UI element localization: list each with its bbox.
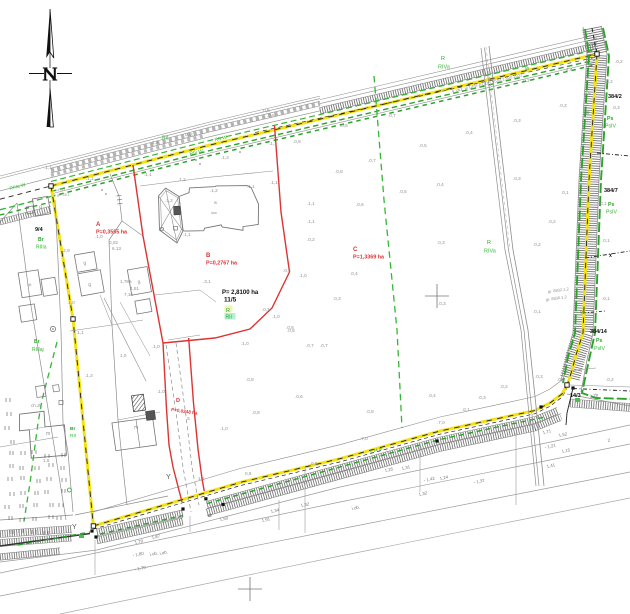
svg-text:Y: Y xyxy=(72,524,77,531)
svg-text:.1,2: .1,2 xyxy=(165,198,173,203)
svg-text:Br: Br xyxy=(70,426,75,432)
svg-text:Br: Br xyxy=(38,237,44,243)
svg-text:low: low xyxy=(211,211,217,215)
svg-text:.0,5: .0,5 xyxy=(262,108,270,113)
svg-text:11/5: 11/5 xyxy=(224,297,237,304)
svg-text:R: R xyxy=(226,308,230,314)
svg-text:.0,3: .0,3 xyxy=(438,301,446,306)
svg-text:.0,2: .0,2 xyxy=(548,219,556,224)
svg-text:RIIIaj: RIIIaj xyxy=(32,347,44,353)
svg-text:.1,0: .1,0 xyxy=(272,314,280,319)
svg-text:.0,1: .0,1 xyxy=(602,296,610,301)
svg-text:.0,4: .0,4 xyxy=(436,182,444,187)
svg-text:0,9: 0,9 xyxy=(311,461,318,466)
svg-text:384/14: 384/14 xyxy=(590,329,608,335)
svg-text:.1,1: .1,1 xyxy=(270,180,278,185)
svg-text:RIVa: RIVa xyxy=(438,65,451,71)
svg-text:.1,1: .1,1 xyxy=(44,165,52,170)
svg-text:.5: .5 xyxy=(186,416,190,421)
svg-text:Ps: Ps xyxy=(596,338,602,344)
svg-text:RIVa: RIVa xyxy=(484,249,497,255)
svg-text:A: A xyxy=(96,222,101,228)
svg-text:.1,1: .1,1 xyxy=(76,330,84,335)
svg-text:.0,7: .0,7 xyxy=(368,158,376,163)
svg-text:4,51: 4,51 xyxy=(130,286,139,291)
svg-text:.0,4: .0,4 xyxy=(465,130,473,135)
svg-text:.2,5: .2,5 xyxy=(583,91,591,96)
svg-text:.0,3: .0,3 xyxy=(559,103,567,108)
svg-text:.0,8: .0,8 xyxy=(335,169,343,174)
svg-text:.0,5: .0,5 xyxy=(399,189,407,194)
svg-text:.1,2: .1,2 xyxy=(178,177,186,182)
svg-text:9/4: 9/4 xyxy=(35,227,44,233)
svg-text:.0,1: .0,1 xyxy=(599,201,607,206)
svg-text:RII: RII xyxy=(226,315,232,321)
svg-text:.0,2: .0,2 xyxy=(307,237,315,242)
svg-text:.0,5: .0,5 xyxy=(557,377,565,382)
svg-text:.1,0: .1,0 xyxy=(152,344,160,349)
svg-text:.0,7: .0,7 xyxy=(306,343,314,348)
svg-text:.0,3: .0,3 xyxy=(478,395,486,400)
svg-text:.1,0: .1,0 xyxy=(299,273,307,278)
svg-text:.0,5: .0,5 xyxy=(419,143,427,148)
svg-text:.0,3: .0,3 xyxy=(513,118,521,123)
svg-text:RIIIa: RIIIa xyxy=(36,245,47,251)
svg-text:.0,4: .0,4 xyxy=(350,271,358,276)
svg-text:.0,1: .0,1 xyxy=(602,238,610,243)
svg-text:.1,3: .1,3 xyxy=(85,373,93,378)
svg-text:.0,2: .0,2 xyxy=(615,59,623,64)
svg-text:.1,1: .1,1 xyxy=(247,184,255,189)
svg-text:D: D xyxy=(176,398,180,404)
svg-text:-4 -52: -4 -52 xyxy=(56,188,65,192)
svg-text:B: B xyxy=(206,253,211,259)
svg-text:.1,0: .1,0 xyxy=(67,300,75,305)
svg-text:2.4: 2.4 xyxy=(566,67,573,72)
svg-text:.0,6: .0,6 xyxy=(295,394,303,399)
svg-text:1,6: 1,6 xyxy=(43,458,50,463)
svg-text:.1,1: .1,1 xyxy=(269,141,277,146)
svg-text:.1,1: .1,1 xyxy=(307,219,315,224)
svg-text:.0,1: .0,1 xyxy=(533,309,541,314)
svg-text:P=1,3369 ha: P=1,3369 ha xyxy=(353,255,385,261)
svg-text:0,9: 0,9 xyxy=(245,471,252,476)
svg-text:m: m xyxy=(46,431,50,437)
svg-text:P=0,2767 ha: P=0,2767 ha xyxy=(206,261,238,267)
svg-text:.0,8: .0,8 xyxy=(252,410,260,415)
svg-text:.0,2: .0,2 xyxy=(606,377,614,382)
svg-text:.0,3: .0,3 xyxy=(333,296,341,301)
svg-text:.0,6: .0,6 xyxy=(283,268,291,273)
svg-text:.2,9: .2,9 xyxy=(62,248,70,253)
svg-text:C: C xyxy=(353,247,358,253)
svg-text:PsIV: PsIV xyxy=(594,346,605,352)
svg-text:.0,4: .0,4 xyxy=(428,393,436,398)
svg-text:1,78a: 1,78a xyxy=(120,279,132,284)
svg-text:.0,5: .0,5 xyxy=(267,113,275,118)
svg-text:PsIV: PsIV xyxy=(605,124,616,130)
svg-text:.1,1: .1,1 xyxy=(144,172,152,177)
svg-text:.1,2: .1,2 xyxy=(210,188,218,193)
svg-text:.0,2: .0,2 xyxy=(605,79,613,84)
svg-text:.7,0: .7,0 xyxy=(360,436,368,441)
svg-text:.0,8: .0,8 xyxy=(340,123,348,128)
svg-text:Ps: Ps xyxy=(608,202,614,208)
svg-text:.0,3: .0,3 xyxy=(612,105,620,110)
svg-text:1,0: 1,0 xyxy=(120,353,127,358)
svg-text:RII: RII xyxy=(162,136,168,142)
svg-text:.0,3: .0,3 xyxy=(535,374,543,379)
svg-text:7,16: 7,16 xyxy=(124,292,133,297)
svg-text:.0,1: .0,1 xyxy=(561,190,569,195)
svg-text:.0,6: .0,6 xyxy=(356,202,364,207)
svg-text:Br: Br xyxy=(34,339,40,345)
svg-text:ch.zk.: ch.zk. xyxy=(31,403,43,408)
svg-text:.1,1: .1,1 xyxy=(86,176,94,181)
svg-text:Y: Y xyxy=(166,474,171,481)
svg-text:m: m xyxy=(134,424,139,431)
svg-text:.0,3: .0,3 xyxy=(513,176,521,181)
svg-text:PsIV: PsIV xyxy=(606,210,617,216)
svg-text:R: R xyxy=(487,240,491,246)
svg-text:.0,3: .0,3 xyxy=(437,240,445,245)
svg-text:.0,8: .0,8 xyxy=(293,139,301,144)
svg-text:Ps: Ps xyxy=(607,116,613,122)
svg-text:P= 2,8100 ha: P= 2,8100 ha xyxy=(222,290,259,296)
svg-text:dr: dr xyxy=(208,513,213,518)
svg-text:.1,0: .1,0 xyxy=(95,234,103,239)
svg-text:.0,8: .0,8 xyxy=(246,377,254,382)
svg-text:.0,1: .0,1 xyxy=(262,307,270,312)
svg-text:.0,2: .0,2 xyxy=(533,242,541,247)
svg-text:.0,8: .0,8 xyxy=(366,409,374,414)
svg-text:384/7: 384/7 xyxy=(604,188,618,194)
svg-text:.1,0: .1,0 xyxy=(157,389,165,394)
svg-text:.1,0: .1,0 xyxy=(220,426,228,431)
svg-text:R: R xyxy=(441,56,445,62)
svg-text:gb. DE1: gb. DE1 xyxy=(57,193,70,197)
svg-text:.0,8: .0,8 xyxy=(286,325,294,330)
svg-text:RII: RII xyxy=(70,433,76,439)
svg-text:1,2: 1,2 xyxy=(198,476,205,481)
svg-text:.1,1: .1,1 xyxy=(307,201,315,206)
svg-text:.1,1: .1,1 xyxy=(183,232,191,237)
svg-text:0,5t: 0,5t xyxy=(185,132,193,137)
svg-text:1,2: 1,2 xyxy=(152,140,159,145)
svg-text:.1,0: .1,0 xyxy=(241,341,249,346)
svg-text:.0,7: .0,7 xyxy=(320,343,328,348)
svg-text:.0,2: .0,2 xyxy=(500,384,508,389)
svg-text:.1,3: .1,3 xyxy=(221,155,229,160)
svg-text:.0,1: .0,1 xyxy=(462,407,470,412)
svg-text:.3,1: .3,1 xyxy=(203,279,211,284)
svg-text:384/2: 384/2 xyxy=(608,94,622,100)
svg-text:.0,2: .0,2 xyxy=(522,78,530,83)
svg-text:.0,7: .0,7 xyxy=(388,113,396,118)
svg-text:.7,0: .7,0 xyxy=(437,420,445,425)
svg-text:0,02: 0,02 xyxy=(109,240,118,245)
svg-text:6,13: 6,13 xyxy=(112,246,121,251)
